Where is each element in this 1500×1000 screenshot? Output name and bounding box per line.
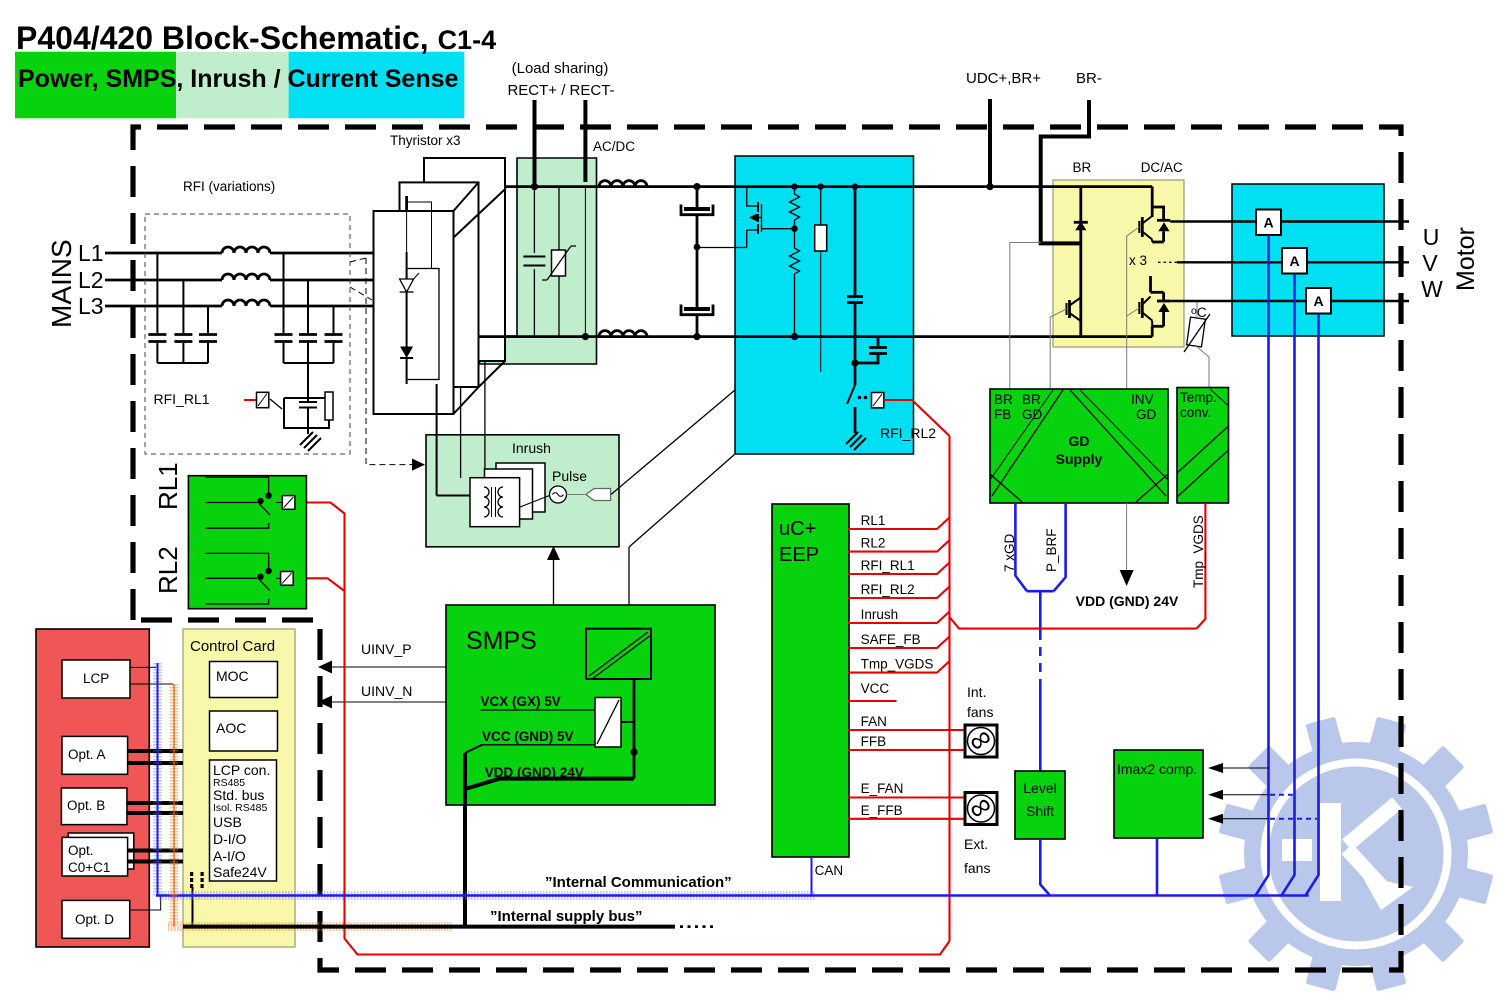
svg-text:x 3: x 3 bbox=[1129, 253, 1147, 268]
svg-text:conv.: conv. bbox=[1180, 405, 1211, 420]
svg-text:FFB: FFB bbox=[861, 734, 887, 749]
svg-text:VCC (GND) 5V: VCC (GND) 5V bbox=[482, 729, 574, 744]
svg-text:”Internal Communication”: ”Internal Communication” bbox=[545, 874, 732, 891]
svg-text:LCP: LCP bbox=[83, 671, 109, 686]
svg-text:GD: GD bbox=[1136, 407, 1157, 422]
svg-text:BR: BR bbox=[1022, 392, 1041, 407]
svg-text:GD: GD bbox=[1069, 433, 1090, 449]
svg-text:RL2: RL2 bbox=[153, 546, 183, 594]
svg-text:Tmp_VGDS: Tmp_VGDS bbox=[1191, 515, 1206, 588]
svg-text:MAINS: MAINS bbox=[46, 239, 77, 328]
svg-text:FB: FB bbox=[994, 407, 1011, 422]
svg-text:LCP con.: LCP con. bbox=[213, 762, 270, 778]
svg-text:RFI (variations): RFI (variations) bbox=[183, 179, 275, 194]
svg-text:(Load sharing): (Load sharing) bbox=[512, 60, 609, 77]
svg-text:Pulse: Pulse bbox=[552, 468, 587, 484]
svg-text:SMPS: SMPS bbox=[466, 627, 537, 655]
svg-text:W: W bbox=[1421, 276, 1443, 302]
svg-text:Tmp_VGDS: Tmp_VGDS bbox=[861, 657, 934, 672]
svg-text:”Internal supply bus”: ”Internal supply bus” bbox=[490, 908, 643, 925]
svg-text:RL1: RL1 bbox=[861, 513, 886, 528]
svg-text:USB: USB bbox=[213, 814, 242, 830]
svg-text:BR: BR bbox=[1073, 160, 1092, 175]
svg-text:SAFE_FB: SAFE_FB bbox=[861, 632, 921, 647]
svg-text:AOC: AOC bbox=[216, 720, 246, 736]
svg-text:Opt. A: Opt. A bbox=[68, 747, 106, 762]
svg-text:Inrush: Inrush bbox=[861, 607, 899, 622]
svg-text:fans: fans bbox=[964, 860, 990, 876]
svg-text:VDD (GND) 24V: VDD (GND) 24V bbox=[1076, 593, 1179, 609]
svg-text:L2: L2 bbox=[78, 267, 104, 293]
svg-text:fans: fans bbox=[967, 704, 993, 720]
svg-text:UINV_N: UINV_N bbox=[361, 683, 412, 699]
svg-text:Temp.: Temp. bbox=[1180, 390, 1217, 405]
svg-text:U: U bbox=[1423, 224, 1440, 250]
svg-text:7 xGD: 7 xGD bbox=[1002, 533, 1017, 572]
svg-text:Shift: Shift bbox=[1026, 803, 1054, 819]
svg-text:UDC+,BR+: UDC+,BR+ bbox=[966, 70, 1041, 87]
svg-text:Opt.: Opt. bbox=[68, 843, 94, 858]
svg-text:uC+: uC+ bbox=[779, 518, 816, 540]
svg-text:VCX (GX) 5V: VCX (GX) 5V bbox=[481, 694, 561, 709]
svg-text:Inrush: Inrush bbox=[512, 440, 551, 456]
svg-text:RL2: RL2 bbox=[861, 536, 886, 551]
svg-text:Opt. D: Opt. D bbox=[75, 912, 114, 927]
svg-text:BR: BR bbox=[994, 392, 1013, 407]
svg-text:V: V bbox=[1422, 250, 1438, 276]
svg-text:GD: GD bbox=[1022, 407, 1043, 422]
svg-text:Thyristor x3: Thyristor x3 bbox=[390, 133, 461, 148]
svg-text:Control Card: Control Card bbox=[190, 638, 275, 655]
svg-text:Supply: Supply bbox=[1056, 451, 1103, 467]
svg-text:A: A bbox=[1289, 253, 1299, 269]
svg-text:INV: INV bbox=[1131, 392, 1154, 407]
svg-text:Int.: Int. bbox=[967, 684, 986, 700]
svg-text:RFI_RL1: RFI_RL1 bbox=[154, 391, 210, 407]
svg-text:FAN: FAN bbox=[861, 714, 887, 729]
svg-text:RFI_RL2: RFI_RL2 bbox=[861, 582, 915, 597]
svg-text:RECT+ / RECT-: RECT+ / RECT- bbox=[507, 82, 614, 99]
svg-text:D-I/O: D-I/O bbox=[213, 831, 247, 847]
svg-text:RFI_RL1: RFI_RL1 bbox=[861, 558, 915, 573]
svg-text:UINV_P: UINV_P bbox=[361, 641, 412, 657]
svg-text:VCC: VCC bbox=[861, 681, 890, 696]
svg-text:RFI_RL2: RFI_RL2 bbox=[880, 425, 936, 441]
svg-text:L3: L3 bbox=[78, 293, 104, 319]
svg-text:Opt. B: Opt. B bbox=[67, 798, 105, 813]
svg-text:E_FFB: E_FFB bbox=[861, 803, 903, 818]
svg-text:E_FAN: E_FAN bbox=[861, 781, 904, 796]
svg-text:RL1: RL1 bbox=[153, 462, 183, 510]
svg-text:CAN: CAN bbox=[815, 863, 844, 878]
svg-text:EEP: EEP bbox=[779, 544, 819, 566]
svg-text:BR-: BR- bbox=[1076, 70, 1102, 87]
svg-text:MOC: MOC bbox=[216, 668, 249, 684]
svg-text:AC/DC: AC/DC bbox=[593, 139, 635, 154]
svg-text:Std. bus: Std. bus bbox=[213, 787, 264, 803]
svg-text:Level: Level bbox=[1023, 780, 1056, 796]
svg-text:C0+C1: C0+C1 bbox=[68, 860, 110, 875]
svg-text:Motor: Motor bbox=[1452, 227, 1480, 291]
svg-text:Ext.: Ext. bbox=[964, 836, 988, 852]
svg-text:Imax2 comp.: Imax2 comp. bbox=[1117, 761, 1197, 777]
svg-text:L1: L1 bbox=[78, 240, 104, 266]
svg-text:P_BRF: P_BRF bbox=[1044, 528, 1059, 572]
svg-text:Isol. RS485: Isol. RS485 bbox=[213, 802, 267, 814]
svg-text:A: A bbox=[1313, 293, 1323, 309]
svg-text:Power, SMPS, Inrush / Current: Power, SMPS, Inrush / Current Sense bbox=[18, 65, 458, 93]
svg-text:Safe24V: Safe24V bbox=[213, 864, 267, 880]
svg-text:A: A bbox=[1263, 215, 1273, 231]
svg-text:A-I/O: A-I/O bbox=[213, 848, 246, 864]
svg-text:DC/AC: DC/AC bbox=[1141, 160, 1183, 175]
svg-text:P404/420 Block-Schematic, C1-4: P404/420 Block-Schematic, C1-4 bbox=[16, 20, 496, 56]
